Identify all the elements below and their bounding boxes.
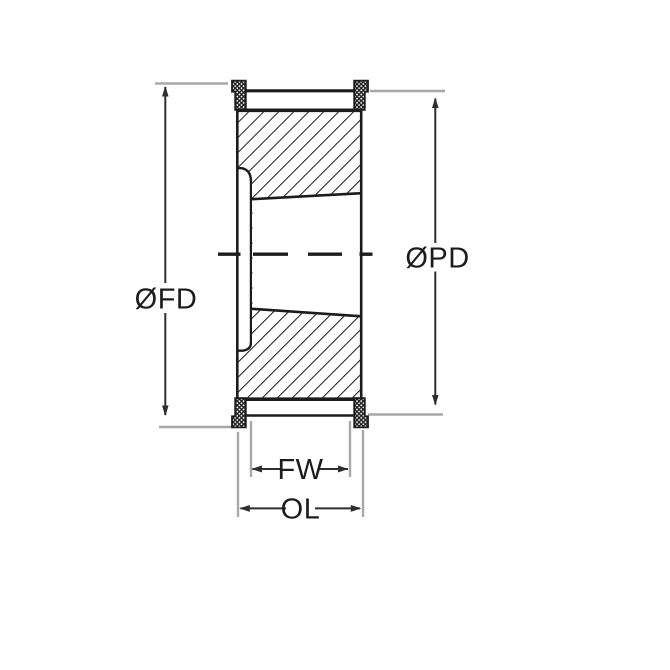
pulley-cross-section-drawing: ØFD ØPD FW OL [0, 0, 670, 670]
fd-label: ØFD [135, 283, 198, 315]
fw-arrow-left [252, 466, 263, 473]
flange-bottom-left [232, 398, 246, 427]
fd-dimension: ØFD [135, 86, 198, 416]
pd-arrow-down [432, 395, 439, 406]
fd-arrow-down [162, 406, 169, 417]
ol-dimension: OL [239, 493, 361, 525]
flange-top-left [232, 81, 246, 110]
ol-label: OL [281, 493, 321, 525]
drawing-canvas: ØFD ØPD FW OL [0, 0, 670, 670]
pd-dimension: ØPD [405, 98, 469, 406]
bushing-recess [238, 169, 250, 351]
flange-top-right [354, 81, 368, 110]
fw-dimension: FW [252, 454, 349, 486]
fw-arrow-right [338, 466, 349, 473]
fw-label: FW [277, 454, 323, 486]
fd-arrow-up [162, 86, 169, 97]
pd-label: ØPD [405, 243, 469, 275]
flange-bottom-right [354, 398, 368, 427]
ol-arrow-left [239, 505, 250, 512]
ol-arrow-right [351, 505, 362, 512]
pd-arrow-up [432, 98, 439, 109]
